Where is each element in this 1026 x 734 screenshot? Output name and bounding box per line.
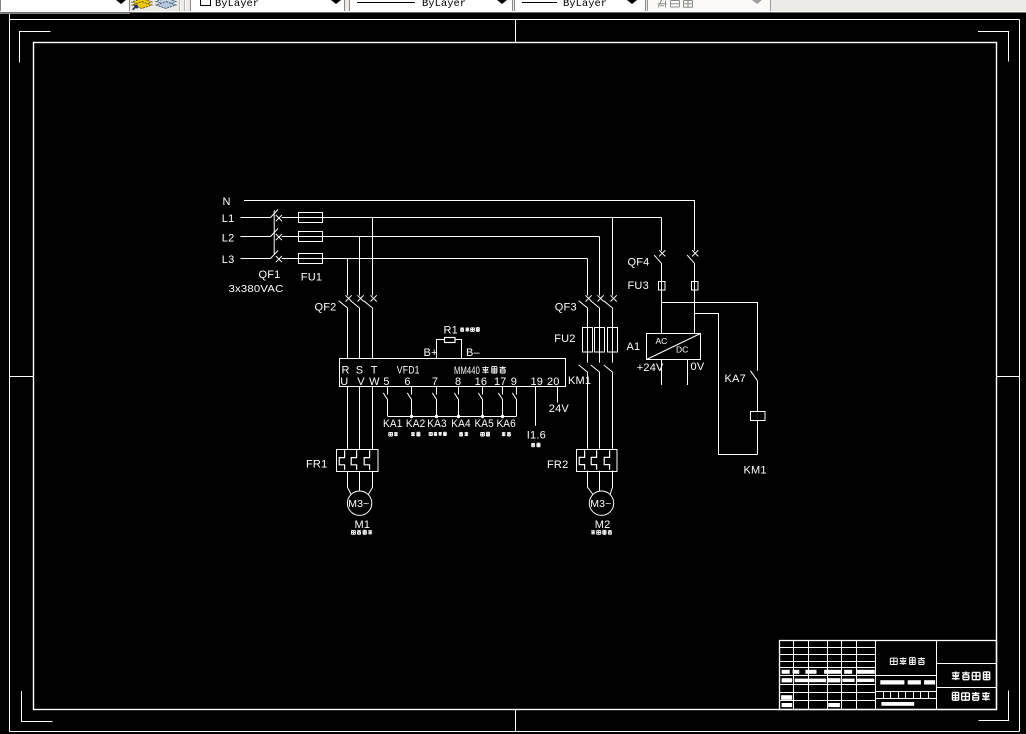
svg-text:KM1: KM1	[568, 375, 591, 387]
svg-text:KA3: KA3	[427, 418, 447, 430]
svg-text:L3: L3	[222, 254, 235, 266]
svg-text:AC: AC	[656, 336, 668, 346]
svg-text:M3~: M3~	[590, 498, 611, 510]
svg-text:QF2: QF2	[315, 301, 337, 313]
svg-text:KM1: KM1	[744, 465, 767, 477]
svg-text:M2: M2	[595, 519, 611, 531]
svg-text:3x380VAC: 3x380VAC	[229, 283, 284, 295]
svg-text:S: S	[356, 364, 364, 376]
svg-text:MM440: MM440	[454, 365, 480, 377]
svg-text:FU2: FU2	[554, 333, 575, 345]
svg-text:19: 19	[530, 376, 543, 388]
svg-text:16: 16	[475, 376, 488, 388]
svg-text:7: 7	[432, 376, 438, 388]
svg-text:24V: 24V	[549, 403, 570, 415]
svg-text:20: 20	[547, 376, 560, 388]
svg-text:QF3: QF3	[555, 301, 577, 313]
svg-text:DC: DC	[676, 345, 688, 355]
svg-text:8: 8	[455, 376, 461, 388]
svg-text:N: N	[223, 196, 231, 208]
svg-text:QF4: QF4	[628, 257, 650, 269]
svg-text:L1: L1	[222, 213, 235, 225]
svg-text:KA4: KA4	[451, 418, 471, 430]
svg-text:KA5: KA5	[474, 418, 494, 430]
svg-text:U: U	[340, 376, 348, 388]
svg-text:FR1: FR1	[306, 458, 327, 470]
svg-text:FU1: FU1	[301, 272, 322, 284]
svg-text:FU3: FU3	[628, 280, 649, 292]
svg-text:QF1: QF1	[259, 269, 281, 281]
svg-text:KA7: KA7	[725, 373, 746, 385]
svg-text:B+: B+	[424, 347, 438, 359]
svg-text:A1: A1	[627, 341, 641, 353]
svg-text:0V: 0V	[691, 361, 705, 373]
svg-text:KA6: KA6	[496, 418, 516, 430]
svg-text:V: V	[357, 376, 365, 388]
svg-text:M1: M1	[355, 519, 371, 531]
svg-text:L2: L2	[222, 233, 235, 245]
svg-text:5: 5	[383, 376, 389, 388]
svg-text:KA2: KA2	[406, 418, 426, 430]
svg-text:M3~: M3~	[348, 498, 369, 510]
svg-text:R1: R1	[444, 324, 458, 336]
svg-text:B–: B–	[466, 347, 481, 359]
svg-text:6: 6	[404, 376, 410, 388]
svg-text:+24V: +24V	[637, 362, 664, 374]
svg-text:R: R	[342, 364, 350, 376]
svg-text:KA1: KA1	[383, 418, 403, 430]
svg-text:I1.6: I1.6	[527, 430, 546, 442]
svg-text:FR2: FR2	[547, 459, 568, 471]
svg-text:W: W	[369, 376, 380, 388]
svg-text:VFD1: VFD1	[397, 365, 420, 377]
svg-text:T: T	[371, 364, 378, 376]
svg-text:9: 9	[511, 376, 517, 388]
svg-text:17: 17	[494, 376, 507, 388]
